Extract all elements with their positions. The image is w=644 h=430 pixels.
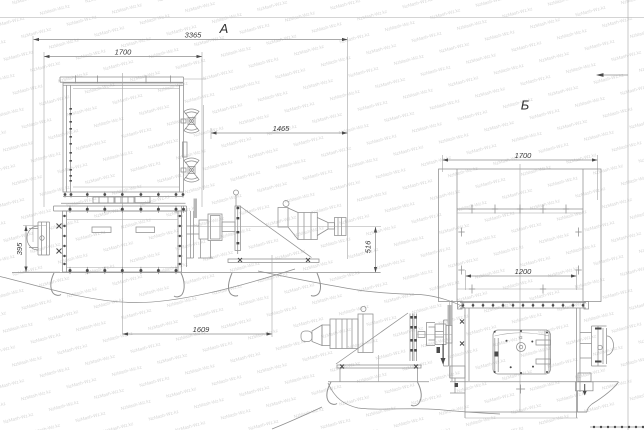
svg-text:1465: 1465 [273,124,291,133]
svg-text:1700: 1700 [515,151,533,160]
svg-text:A: A [219,21,229,36]
svg-text:3365: 3365 [185,31,203,40]
svg-text:1200: 1200 [515,267,533,276]
svg-text:1609: 1609 [193,325,211,334]
svg-text:1700: 1700 [115,48,133,57]
svg-text:Б: Б [521,98,530,113]
svg-text:395: 395 [15,242,24,255]
svg-text:516: 516 [364,240,373,253]
